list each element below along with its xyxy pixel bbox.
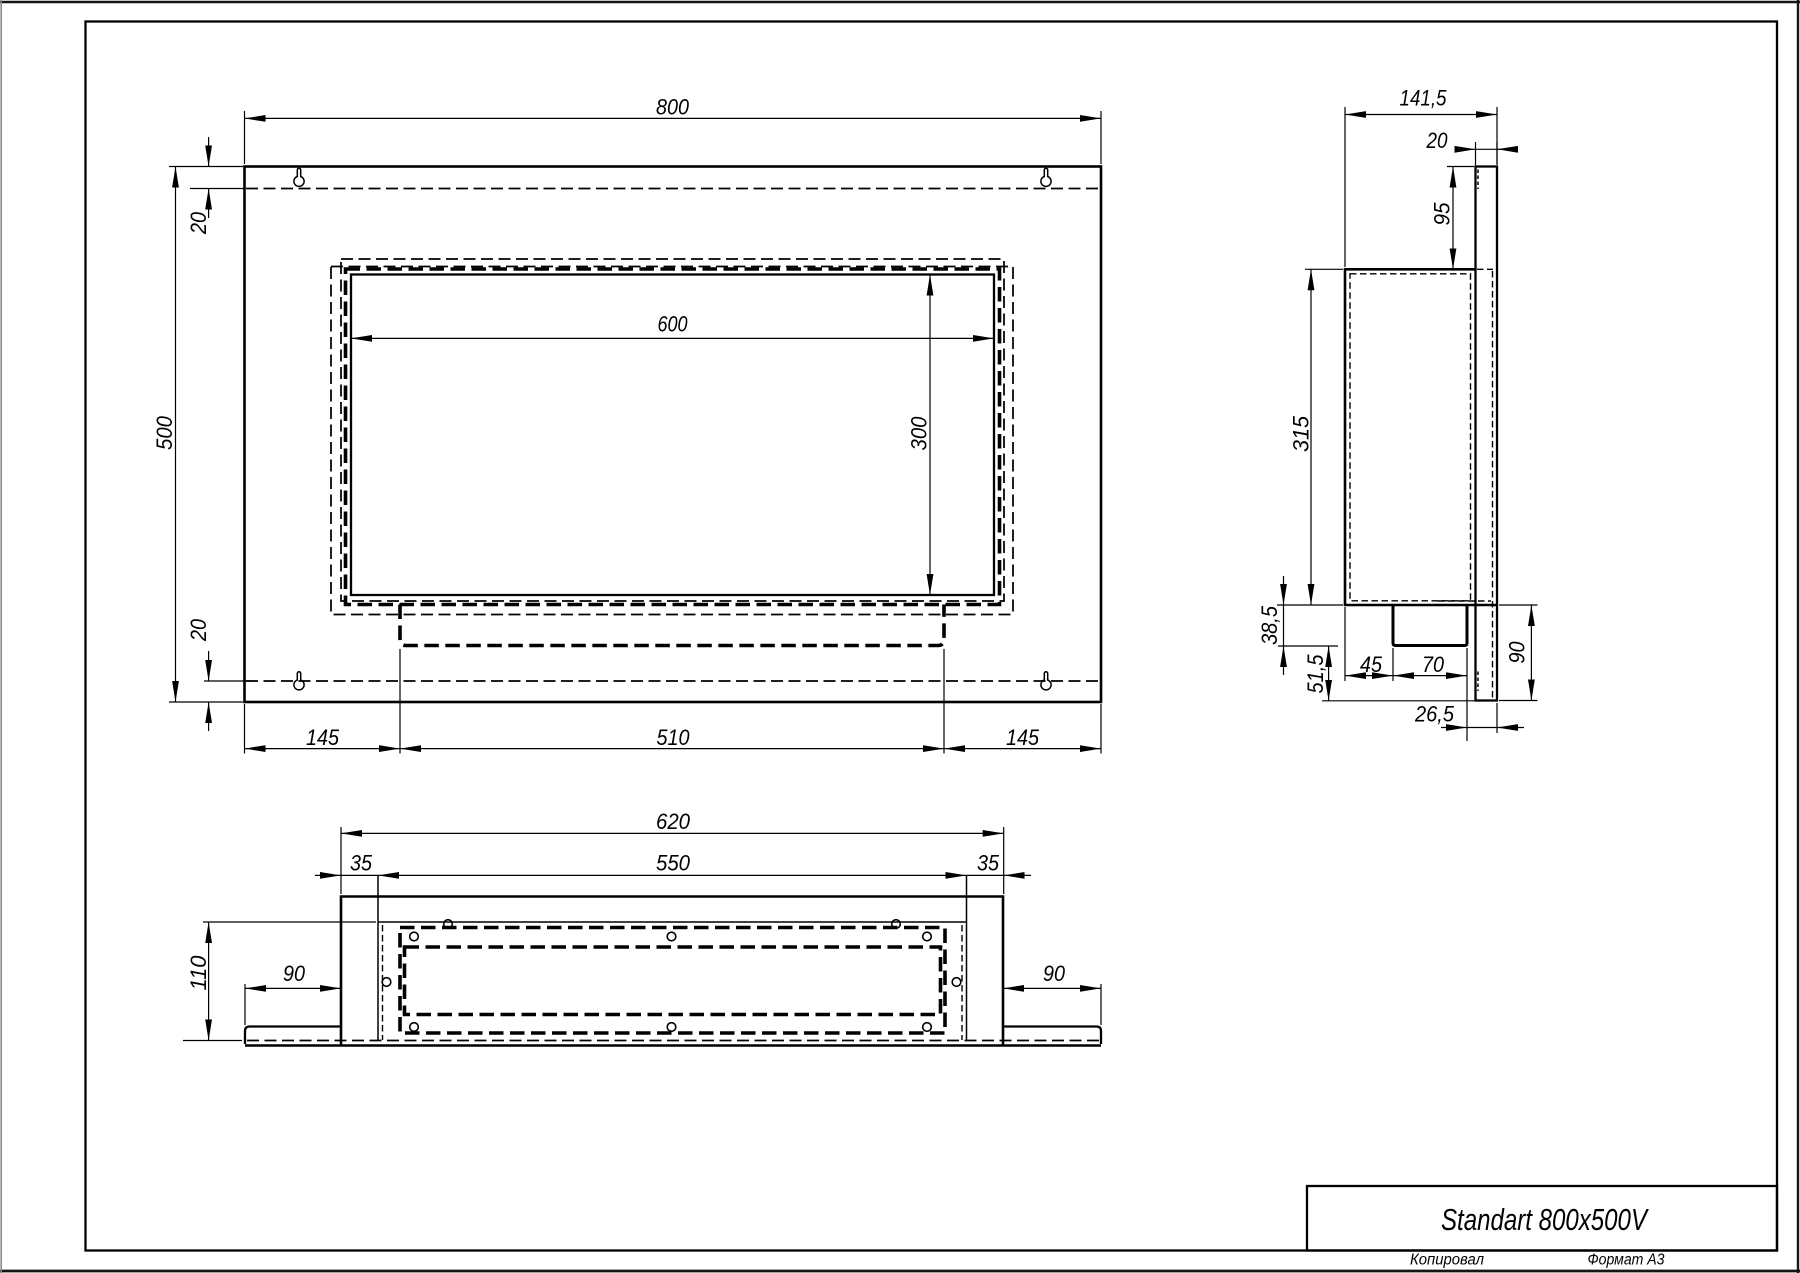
svg-text:20: 20 [1426,128,1448,153]
svg-text:51,5: 51,5 [1303,654,1328,693]
svg-text:26,5: 26,5 [1414,702,1454,727]
svg-text:38,5: 38,5 [1257,606,1282,645]
svg-text:20: 20 [186,619,211,642]
svg-text:510: 510 [657,725,690,750]
svg-text:300: 300 [907,416,932,450]
svg-text:800: 800 [656,95,689,120]
svg-text:550: 550 [656,851,690,876]
svg-text:35: 35 [350,851,372,876]
svg-text:145: 145 [1006,725,1039,750]
svg-text:620: 620 [656,809,690,834]
svg-text:110: 110 [186,955,211,990]
svg-text:20: 20 [186,212,211,235]
svg-text:145: 145 [306,725,339,750]
svg-text:95: 95 [1430,202,1455,225]
svg-text:45: 45 [1360,652,1382,677]
svg-text:600: 600 [658,312,688,337]
svg-text:500: 500 [152,416,177,450]
svg-text:90: 90 [1505,641,1530,663]
svg-text:90: 90 [1043,961,1065,986]
svg-text:Копировал: Копировал [1410,1252,1484,1269]
svg-text:90: 90 [283,961,305,986]
svg-text:35: 35 [977,851,999,876]
svg-text:141,5: 141,5 [1400,86,1447,111]
svg-text:315: 315 [1289,416,1314,452]
svg-text:70: 70 [1422,652,1444,677]
svg-text:Формат А3: Формат А3 [1588,1252,1665,1269]
svg-text:Standart 800x500V: Standart 800x500V [1441,1202,1650,1237]
